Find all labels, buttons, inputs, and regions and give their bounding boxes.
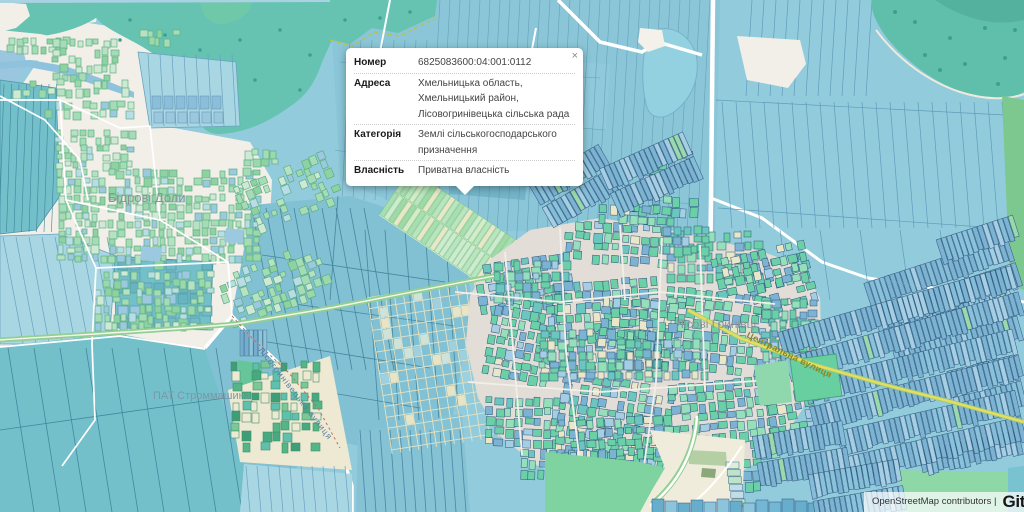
svg-text:ПАТ Строммашина: ПАТ Строммашина bbox=[153, 390, 252, 402]
svg-text:Лісові Гринівці: Лісові Гринівці bbox=[676, 317, 756, 331]
svg-text:Бідрові Доли: Бідрові Доли bbox=[108, 190, 186, 205]
